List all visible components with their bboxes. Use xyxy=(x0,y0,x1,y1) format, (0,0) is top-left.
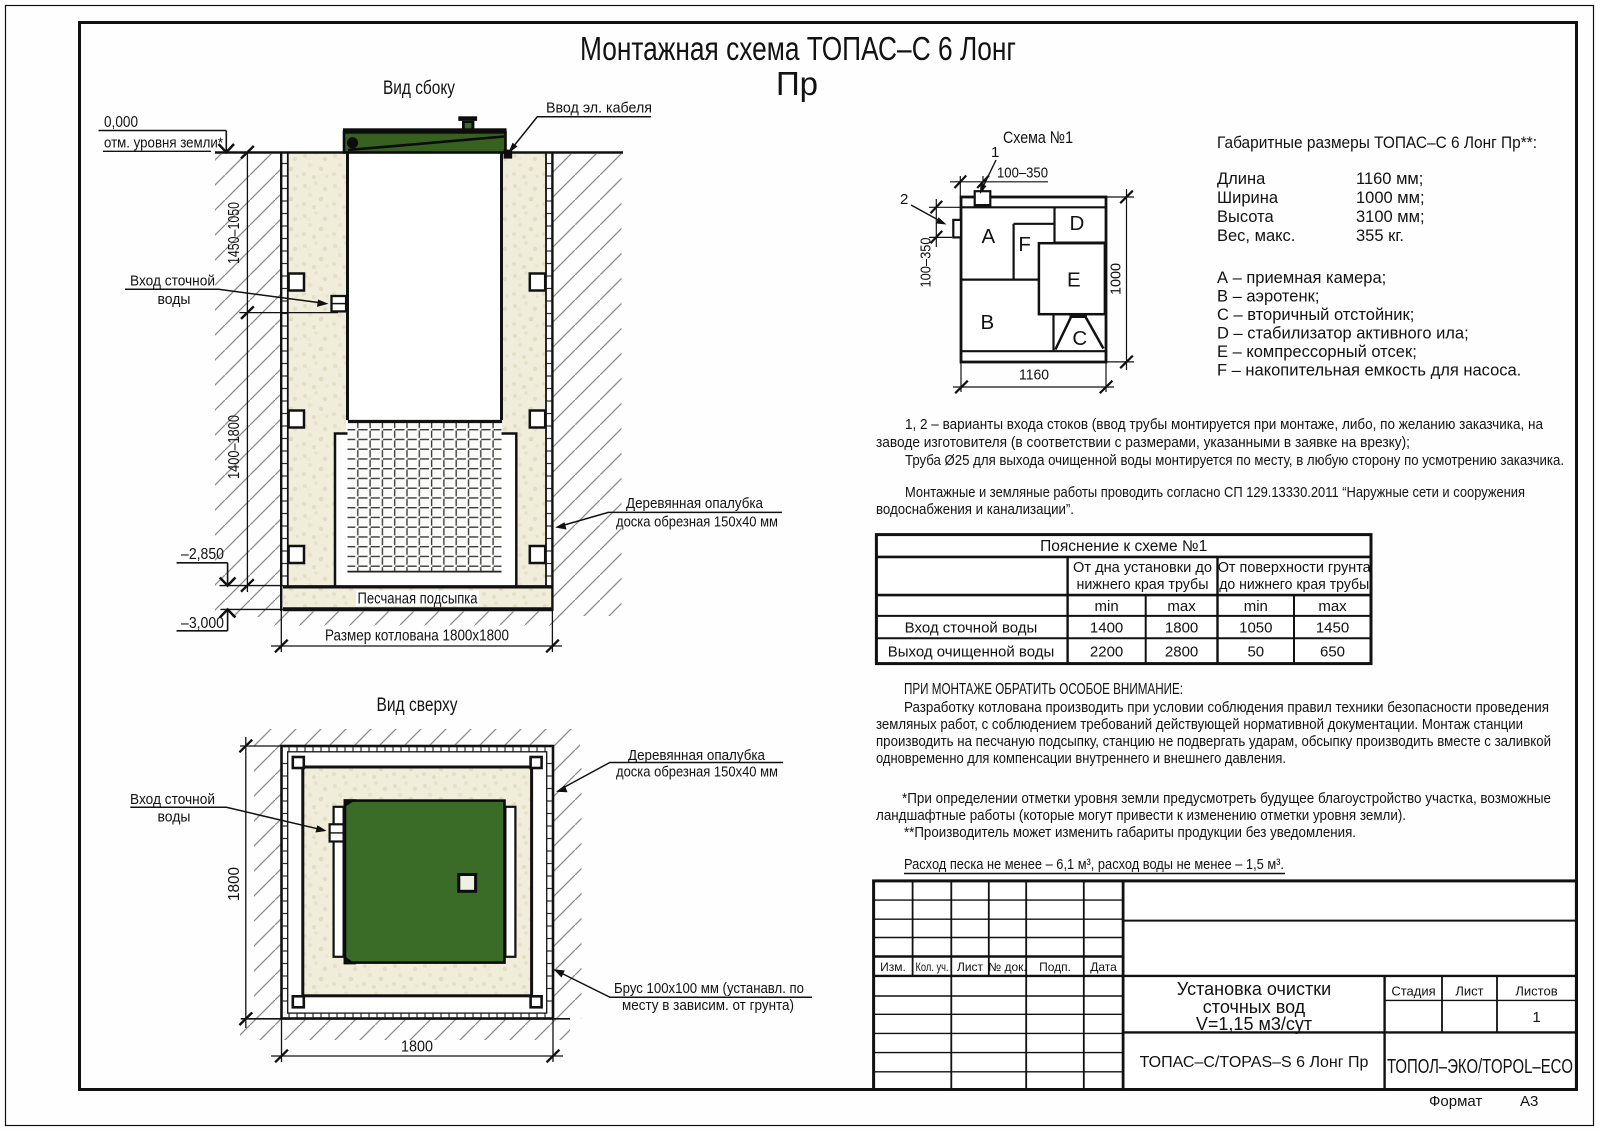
svg-text:Монтажная схема ТОПАС–С 6 Лонг: Монтажная схема ТОПАС–С 6 Лонг xyxy=(580,30,1016,67)
svg-text:Брус 100х100 мм (устанавл. по: Брус 100х100 мм (устанавл. по xyxy=(614,981,804,997)
svg-text:№ док.: № док. xyxy=(988,960,1026,974)
svg-text:Подп.: Подп. xyxy=(1039,960,1071,974)
svg-text:2: 2 xyxy=(900,191,908,208)
svg-text:min: min xyxy=(1244,598,1268,615)
svg-text:1000: 1000 xyxy=(1108,263,1125,295)
svg-text:Разработку котлована производи: Разработку котлована производить при усл… xyxy=(904,699,1549,716)
svg-text:2200: 2200 xyxy=(1090,644,1123,661)
svg-text:доска обрезная 150х40 мм: доска обрезная 150х40 мм xyxy=(616,765,778,781)
svg-text:1800: 1800 xyxy=(226,867,243,901)
svg-text:производить на песчаную подсып: производить на песчаную подсыпку, станци… xyxy=(876,733,1551,750)
svg-text:1050: 1050 xyxy=(1239,620,1272,637)
svg-text:1000 мм;: 1000 мм; xyxy=(1356,189,1425,207)
svg-text:Песчаная подсыпка: Песчаная подсыпка xyxy=(358,591,478,608)
svg-text:земляных работ, с соблюдением: земляных работ, с соблюдением требований… xyxy=(876,716,1523,733)
svg-text:Кол. уч.: Кол. уч. xyxy=(916,960,949,974)
svg-text:Длина: Длина xyxy=(1217,170,1266,188)
svg-text:100–350: 100–350 xyxy=(997,165,1048,182)
svg-text:F – накопительная емкость для: F – накопительная емкость для насоса. xyxy=(1217,362,1521,380)
svg-text:650: 650 xyxy=(1320,644,1345,661)
svg-text:max: max xyxy=(1318,598,1347,615)
svg-text:А – приемная камера;: А – приемная камера; xyxy=(1217,269,1386,287)
svg-text:одновременно для компенсации в: одновременно для компенсации внутреннего… xyxy=(876,750,1286,767)
svg-text:водоснабжения и канализации”.: водоснабжения и канализации”. xyxy=(876,501,1074,518)
svg-text:1800: 1800 xyxy=(401,1039,433,1056)
svg-text:Вход сточной воды: Вход сточной воды xyxy=(905,620,1038,637)
svg-text:3100 мм;: 3100 мм; xyxy=(1356,208,1425,226)
svg-text:D: D xyxy=(1069,212,1084,235)
svg-text:отм. уровня земли*: отм. уровня земли* xyxy=(104,136,223,152)
svg-text:В – аэротенк;: В – аэротенк; xyxy=(1217,288,1319,306)
svg-text:F: F xyxy=(1018,233,1031,256)
svg-text:*При определении отметки уровн: *При определении отметки уровня земли пр… xyxy=(902,790,1551,807)
svg-text:1: 1 xyxy=(991,144,999,161)
svg-text:нижнего края трубы: нижнего края трубы xyxy=(1077,577,1209,593)
svg-text:Вход сточной: Вход сточной xyxy=(130,274,215,290)
svg-text:С – вторичный отстойник;: С – вторичный отстойник; xyxy=(1217,306,1414,324)
svg-text:–3,000: –3,000 xyxy=(181,615,224,632)
svg-text:V=1,15 м3/сут: V=1,15 м3/сут xyxy=(1196,1014,1312,1034)
svg-text:Лист: Лист xyxy=(957,960,984,974)
svg-text:Лист: Лист xyxy=(1455,984,1483,999)
svg-text:воды: воды xyxy=(158,292,191,308)
svg-text:заводе изготовителя (в соответ: заводе изготовителя (в соответствии с ра… xyxy=(876,434,1410,451)
svg-text:1160 мм;: 1160 мм; xyxy=(1356,170,1423,188)
svg-text:От поверхности грунта: От поверхности грунта xyxy=(1218,560,1372,576)
svg-text:ПРИ МОНТАЖЕ ОБРАТИТЬ ОСОБОЕ ВН: ПРИ МОНТАЖЕ ОБРАТИТЬ ОСОБОЕ ВНИМАНИЕ: xyxy=(904,681,1183,698)
svg-text:0,000: 0,000 xyxy=(104,114,138,131)
svg-text:B: B xyxy=(980,311,994,334)
svg-text:Труба Ø25 для выхода очищенной: Труба Ø25 для выхода очищенной воды монт… xyxy=(905,452,1564,469)
svg-text:1400: 1400 xyxy=(1090,620,1123,637)
svg-text:1400–1800: 1400–1800 xyxy=(226,415,243,479)
svg-text:Листов: Листов xyxy=(1515,984,1557,999)
svg-text:A: A xyxy=(981,225,995,248)
svg-text:ТОПАС–С/TOPAS–S 6 Лонг Пр: ТОПАС–С/TOPAS–S 6 Лонг Пр xyxy=(1140,1054,1369,1071)
svg-text:ландшафтные работы (которые мо: ландшафтные работы (которые могут привес… xyxy=(876,807,1406,824)
svg-text:до нижнего края трубы: до нижнего края трубы xyxy=(1219,577,1369,593)
svg-text:Монтажные и земляные работы пр: Монтажные и земляные работы проводить со… xyxy=(905,484,1525,501)
svg-text:D – стабилизатор активного ила: D – стабилизатор активного ила; xyxy=(1217,325,1469,343)
svg-text:**Производитель может изменить: **Производитель может изменить габариты … xyxy=(904,824,1356,841)
svg-text:–2,850: –2,850 xyxy=(181,546,224,563)
svg-text:Е – компрессорный отсек;: Е – компрессорный отсек; xyxy=(1217,343,1417,361)
svg-text:Схема №1: Схема №1 xyxy=(1003,128,1073,147)
svg-text:E: E xyxy=(1067,269,1081,292)
svg-text:C: C xyxy=(1072,327,1087,350)
svg-text:Стадия: Стадия xyxy=(1391,984,1435,999)
svg-text:Расход песка не менее – 6,1 м³: Расход песка не менее – 6,1 м³, расход в… xyxy=(904,856,1284,873)
svg-text:Размер котлована 1800х1800: Размер котлована 1800х1800 xyxy=(325,628,509,645)
svg-text:355 кг.: 355 кг. xyxy=(1356,227,1404,245)
svg-text:доска обрезная 150х40 мм: доска обрезная 150х40 мм xyxy=(616,515,778,531)
svg-text:Габаритные размеры ТОПАС–С 6 Л: Габаритные размеры ТОПАС–С 6 Лонг Пр**: xyxy=(1217,134,1537,152)
svg-text:Изм.: Изм. xyxy=(880,960,906,974)
svg-text:Вид сбоку: Вид сбоку xyxy=(383,78,455,99)
svg-text:1450: 1450 xyxy=(1316,620,1349,637)
svg-text:100–350: 100–350 xyxy=(918,238,935,288)
svg-text:Формат: Формат xyxy=(1429,1093,1482,1110)
svg-text:Ввод эл. кабеля: Ввод эл. кабеля xyxy=(546,101,652,117)
svg-text:месту в зависим. от грунта): месту в зависим. от грунта) xyxy=(622,998,794,1014)
svg-text:Вид сверху: Вид сверху xyxy=(377,695,458,716)
svg-text:Установка очистки: Установка очистки xyxy=(1177,979,1331,999)
svg-text:ТОПОЛ–ЭКО/TOPOL–ECO: ТОПОЛ–ЭКО/TOPOL–ECO xyxy=(1387,1055,1573,1078)
svg-text:Вход сточной: Вход сточной xyxy=(130,792,215,808)
svg-text:Вес, макс.: Вес, макс. xyxy=(1217,227,1295,245)
svg-text:Пояснение к схеме №1: Пояснение к схеме №1 xyxy=(1040,538,1207,555)
svg-text:1800: 1800 xyxy=(1165,620,1198,637)
svg-text:1: 1 xyxy=(1532,1009,1540,1026)
svg-text:min: min xyxy=(1095,598,1119,615)
svg-text:Дата: Дата xyxy=(1090,960,1117,974)
svg-text:1, 2 – варианты входа стоков: 1, 2 – варианты входа стоков (ввод трубы… xyxy=(905,416,1544,433)
svg-text:Выход очищенной воды: Выход очищенной воды xyxy=(888,644,1055,661)
svg-text:max: max xyxy=(1167,598,1196,615)
svg-text:От дна установки до: От дна установки до xyxy=(1073,560,1212,576)
svg-text:Деревянная опалубка: Деревянная опалубка xyxy=(628,748,766,764)
svg-text:Высота: Высота xyxy=(1217,208,1274,226)
svg-text:А3: А3 xyxy=(1520,1093,1538,1110)
svg-text:1450–1050: 1450–1050 xyxy=(226,202,243,264)
svg-text:1160: 1160 xyxy=(1019,367,1049,384)
svg-text:Деревянная опалубка: Деревянная опалубка xyxy=(626,496,764,512)
svg-text:Ширина: Ширина xyxy=(1217,189,1279,207)
svg-text:50: 50 xyxy=(1247,644,1264,661)
svg-text:Пр: Пр xyxy=(776,65,818,102)
svg-text:2800: 2800 xyxy=(1165,644,1198,661)
svg-text:воды: воды xyxy=(158,810,191,826)
